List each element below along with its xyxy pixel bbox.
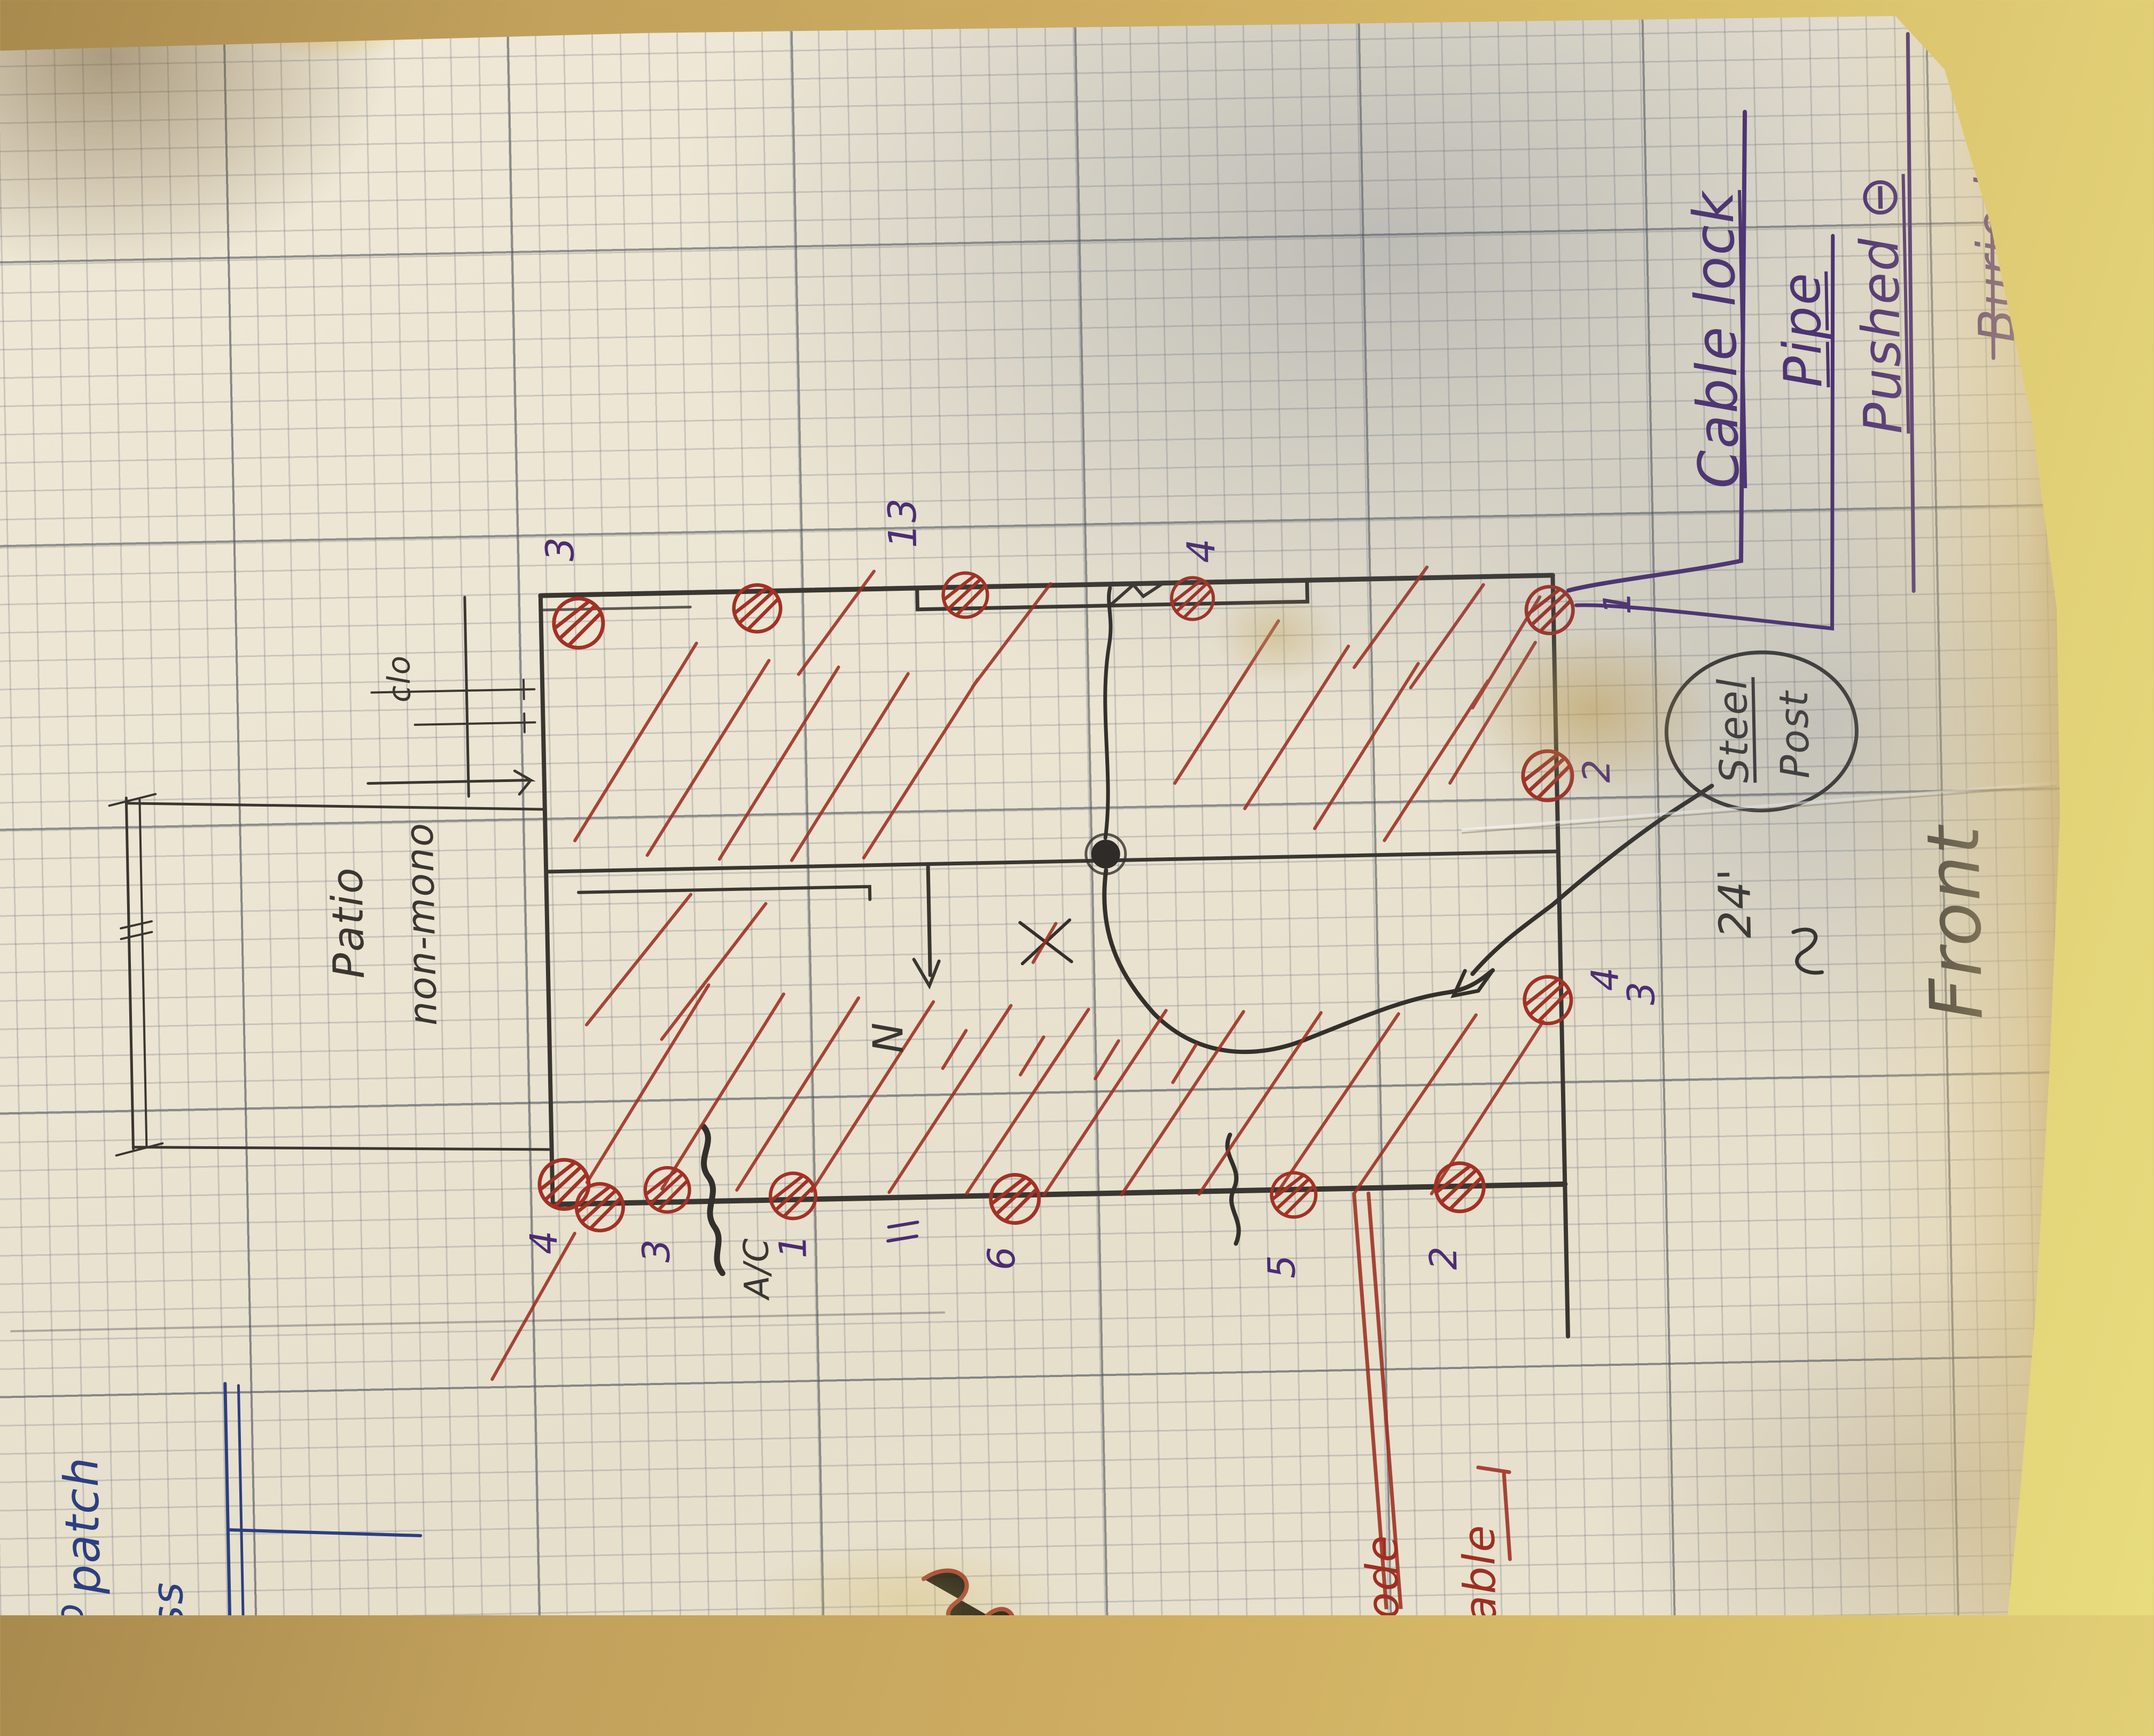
pier-label-top-1: 3 xyxy=(541,536,580,562)
pier-label-right-2: 2 xyxy=(1578,757,1615,783)
closet-label: clo xyxy=(383,654,415,703)
pier-label-top-3: 4 xyxy=(1182,537,1221,564)
grid-emphasis xyxy=(10,1312,945,1331)
paper-grid: Cable lock Pipe Pushed ⊖ Buried Steel Po… xyxy=(0,0,2154,1680)
red-note-fragment-1: node xyxy=(1360,1534,1406,1648)
pier-label-top-2: 13 xyxy=(883,497,922,549)
pier-label-bottom-6: 2 xyxy=(1425,1245,1463,1270)
steel-post-label-1: Steel xyxy=(1713,677,1754,784)
blue-note-fragment: oss xyxy=(146,1581,191,1655)
front-label: Front xyxy=(1917,825,1993,1021)
steel-post-dot xyxy=(1091,839,1120,869)
pipe-path xyxy=(692,574,1828,1273)
pier-label-bottom-1: 4 xyxy=(525,1229,563,1255)
pier-label-bottom-5: 5 xyxy=(1263,1254,1301,1279)
cable-note-line3: Pushed ⊖ xyxy=(1853,174,1910,435)
pier-label-bottom-3: 1 xyxy=(774,1233,812,1259)
red-hatching xyxy=(476,558,1560,1637)
steel-post-label-2: Post xyxy=(1774,690,1815,779)
pier-label-right-4: 3 xyxy=(1622,980,1660,1006)
blue-note-to: to xyxy=(50,1602,89,1644)
blue-note-patch: patch xyxy=(58,1456,107,1595)
dimension-24ft: 24' xyxy=(1713,867,1759,939)
cable-note-line2: Pipe xyxy=(1775,271,1830,388)
red-scribble xyxy=(924,1569,1014,1631)
pier-label-bottom-2: 3 xyxy=(637,1238,675,1263)
arrow-head xyxy=(914,959,940,986)
pier-label-bottom-4: 6 xyxy=(982,1245,1020,1271)
steel-post-circle xyxy=(1665,651,1858,812)
drawing-layer: Cable lock Pipe Pushed ⊖ Buried Steel Po… xyxy=(0,0,2154,1637)
blue-box xyxy=(225,1380,422,1632)
red-note-fragment-2: able xyxy=(1457,1524,1503,1623)
pier-label-right-3: 4 xyxy=(1586,966,1624,991)
cable-note-line1: Cable lock xyxy=(1685,190,1747,489)
sketch-lines xyxy=(0,0,2154,1637)
patio-label-line2: non-mono xyxy=(400,822,442,1026)
pier-label-right-1: 1 xyxy=(1598,590,1636,615)
photo-of-sketch: { "scene": "Photograph of a hand-drawn f… xyxy=(0,0,2154,1615)
cable-note-line4: Buried xyxy=(1970,175,2022,343)
ac-label: A/C xyxy=(739,1237,775,1300)
patio-label-line1: Patio xyxy=(326,866,371,979)
graph-paper-sheet: Cable lock Pipe Pushed ⊖ Buried Steel Po… xyxy=(0,0,2154,1615)
ditto-mark xyxy=(888,1222,918,1241)
north-label: N xyxy=(868,1021,910,1054)
